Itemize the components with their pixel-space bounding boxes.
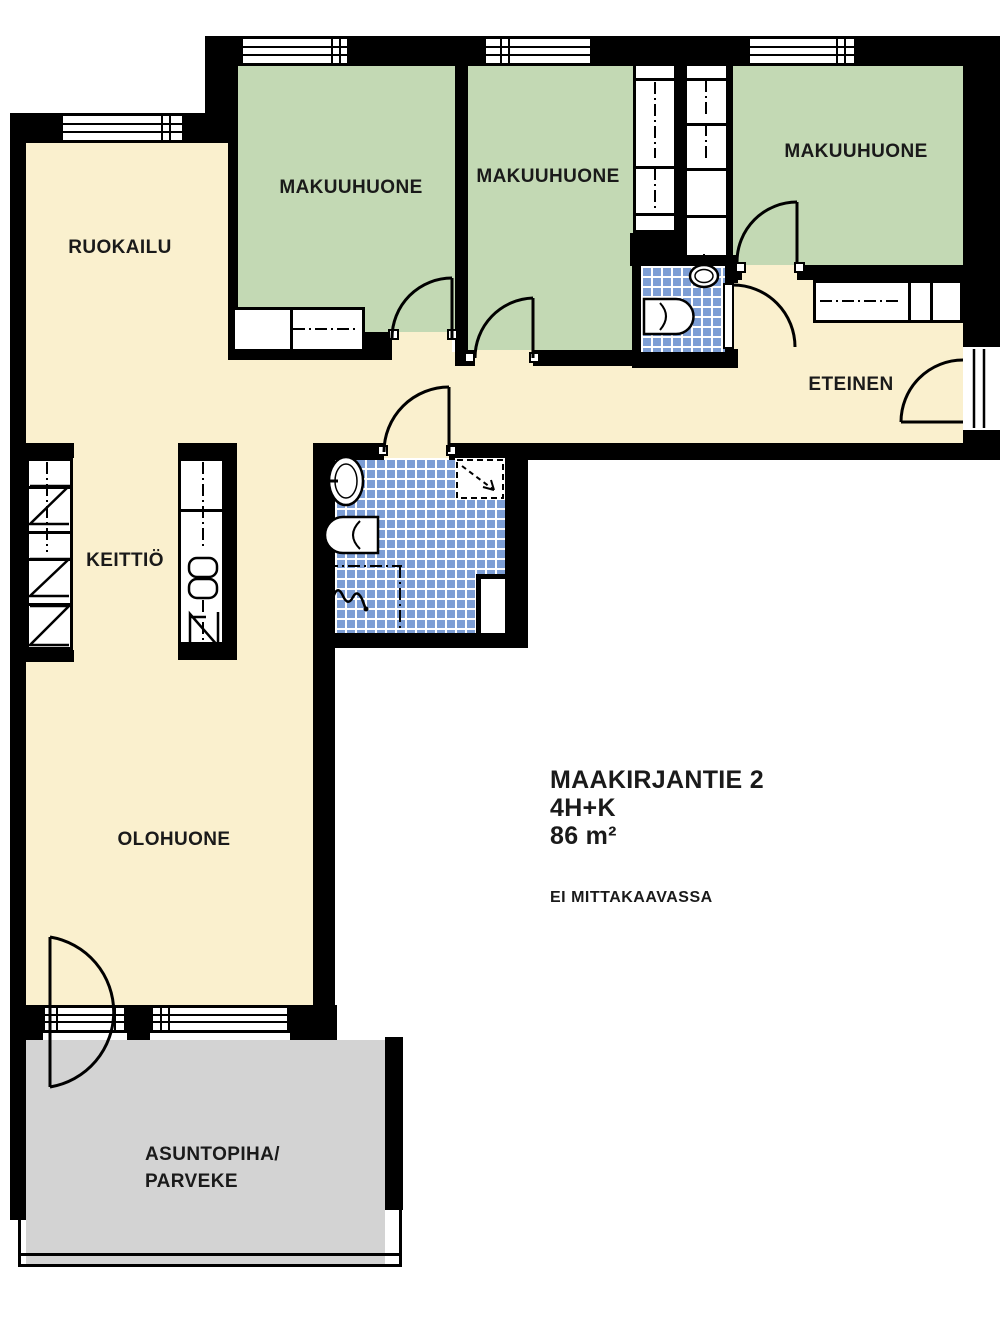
room-label-makuuhuone-left: MAKUUHUONE	[279, 177, 422, 199]
stove-icon	[189, 558, 217, 577]
info-address: MAAKIRJANTIE 2	[550, 766, 764, 794]
dishwasher-icon	[190, 612, 218, 646]
door-arc-bathroom	[384, 387, 449, 452]
door-arc-bedroom1	[392, 278, 452, 338]
room-label-olohuone: OLOHUONE	[118, 829, 231, 851]
room-label-asuntopiha-line2: PARVEKE	[145, 1168, 280, 1195]
info-area: 86 m²	[550, 822, 764, 850]
door-arc-bedroom3	[737, 202, 797, 262]
wc-toilet-icon	[644, 299, 694, 334]
scale-note: EI MITTAKAAVASSA	[550, 889, 713, 907]
door-arc-entry	[901, 360, 963, 422]
room-label-keittio: KEITTIÖ	[86, 550, 164, 572]
room-label-makuuhuone-middle: MAKUUHUONE	[476, 166, 619, 188]
floorplan-canvas: RUOKAILU MAKUUHUONE MAKUUHUONE MAKUUHUON…	[0, 0, 1008, 1344]
room-label-eteinen: ETEINEN	[808, 374, 893, 396]
toilet-icon	[325, 517, 378, 553]
door-arc-bedroom2	[475, 298, 533, 358]
appliance-zigzag-icon	[30, 606, 69, 645]
appliance-zigzag-icon	[30, 486, 69, 524]
room-label-ruokailu: RUOKAILU	[68, 237, 171, 259]
door-arc-wc	[733, 285, 795, 347]
door-arc-balcony	[50, 937, 114, 1087]
info-block: MAAKIRJANTIE 2 4H+K 86 m²	[550, 766, 764, 850]
stove-icon	[189, 579, 217, 598]
appliance-zigzag-icon	[30, 559, 69, 596]
room-label-makuuhuone-right: MAKUUHUONE	[784, 141, 927, 163]
room-label-asuntopiha: ASUNTOPIHA/ PARVEKE	[145, 1141, 280, 1195]
washer-squiggle-icon	[328, 590, 369, 615]
info-layout: 4H+K	[550, 794, 764, 822]
shower-arrow-icon	[462, 466, 494, 490]
sink-icon	[321, 457, 363, 505]
room-label-asuntopiha-line1: ASUNTOPIHA/	[145, 1141, 280, 1168]
wc-sink-icon	[690, 254, 718, 287]
